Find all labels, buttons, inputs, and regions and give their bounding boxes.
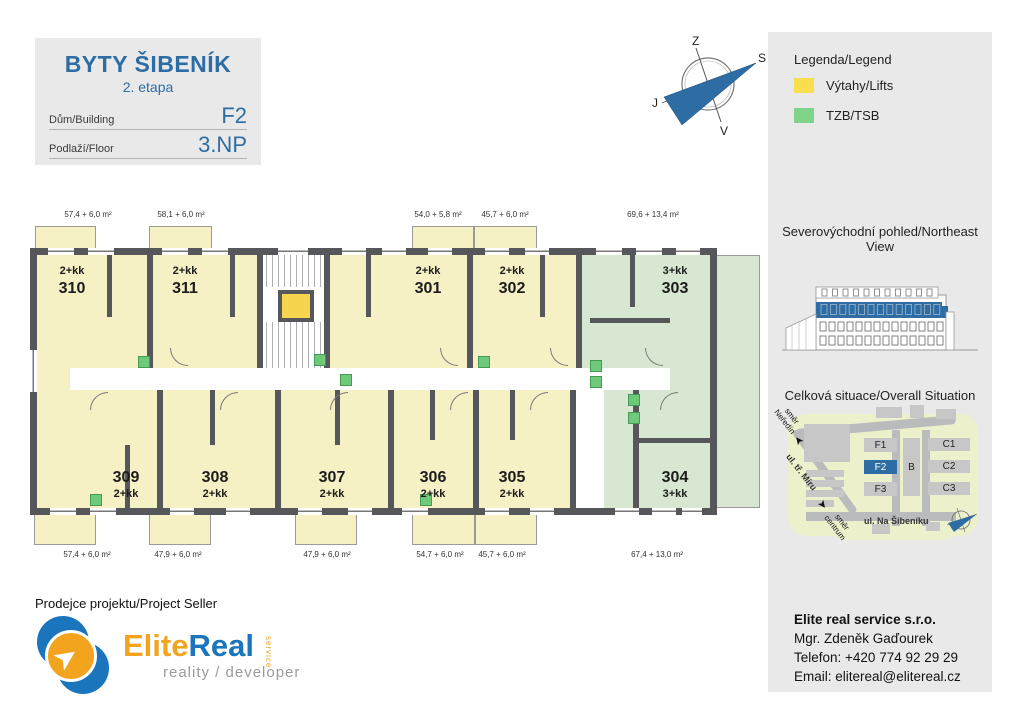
window: [485, 508, 509, 515]
unit-label-302: 2+kk302: [480, 265, 544, 299]
map-building-f3: F3: [864, 482, 897, 496]
compass-west-label: Z: [692, 34, 699, 48]
area-label: 45,7 + 6,0 m²: [457, 550, 547, 559]
window: [348, 508, 372, 515]
title-block: BYTY ŠIBENÍK 2. etapa Dům/Building F2 Po…: [35, 38, 261, 165]
balcony: [35, 226, 96, 249]
corridor-end: [670, 368, 710, 390]
balcony: [474, 226, 537, 249]
unit-label-307: 3072+kk: [300, 468, 364, 502]
legend-title: Legenda/Legend: [794, 52, 892, 67]
tzb-shaft: [628, 394, 640, 406]
floor-value: 3.NP: [198, 132, 247, 158]
area-label: 58,1 + 6,0 m²: [136, 210, 226, 219]
elitereal-logo-text: EliteReal: [123, 628, 254, 664]
window: [342, 248, 366, 255]
legend-lift-label: Výtahy/Lifts: [826, 78, 893, 93]
map-building-c3: C3: [928, 482, 970, 495]
logo-tagline: reality / developer: [163, 664, 300, 681]
balcony: [295, 515, 357, 545]
window: [402, 508, 428, 515]
tzb-room: [604, 390, 633, 508]
window: [525, 248, 549, 255]
contact-person: Mgr. Zdeněk Gaďourek: [794, 629, 961, 648]
contact-email: Email: elitereal@elitereal.cz: [794, 667, 961, 686]
window: [30, 350, 37, 392]
contact-phone: Telefon: +420 774 92 29 29: [794, 648, 961, 667]
unit-label-308: 3082+kk: [183, 468, 247, 502]
window: [636, 248, 662, 255]
window: [382, 248, 406, 255]
window: [530, 508, 554, 515]
seller-heading: Prodejce projektu/Project Seller: [35, 596, 217, 611]
stairs: [266, 322, 321, 368]
area-label: 45,7 + 6,0 m²: [460, 210, 550, 219]
balcony: [149, 226, 212, 249]
unit-label-311: 2+kk311: [153, 265, 217, 299]
balcony: [149, 515, 211, 545]
window: [485, 248, 509, 255]
tzb-shaft: [138, 356, 150, 368]
corridor-end: [37, 368, 70, 390]
unit-label-304: 3043+kk: [643, 468, 707, 502]
map-building-f1: F1: [864, 438, 897, 452]
floor-plan: 57,4 + 6,0 m² 58,1 + 6,0 m² 54,0 + 5,8 m…: [30, 210, 764, 560]
side-panel: Legenda/Legend Výtahy/Lifts TZB/TSB Seve…: [768, 32, 992, 692]
unit-label-310: 2+kk310: [40, 265, 104, 299]
tzb-shaft: [590, 360, 602, 372]
window: [88, 248, 114, 255]
floor-label: Podlaží/Floor: [49, 143, 114, 155]
contact-company: Elite real service s.r.o.: [794, 610, 961, 629]
northeast-elevation: [778, 250, 982, 362]
legend-tzb-swatch: [794, 108, 814, 123]
window: [428, 248, 452, 255]
window: [48, 248, 74, 255]
terrace: [717, 255, 760, 508]
corridor: [70, 368, 670, 390]
window: [50, 508, 76, 515]
tzb-shaft: [590, 376, 602, 388]
floorplan-sheet: BYTY ŠIBENÍK 2. etapa Dům/Building F2 Po…: [0, 0, 1024, 724]
stairs: [266, 255, 321, 287]
tzb-shaft: [314, 354, 326, 366]
street-na-sibeniku: ul. Na Šibeníku: [864, 516, 929, 526]
unit-label-309: 3092+kk: [94, 468, 158, 502]
unit-label-306: 3062+kk: [401, 468, 465, 502]
map-building-c1: C1: [928, 438, 970, 451]
contact-block: Elite real service s.r.o. Mgr. Zdeněk Ga…: [794, 610, 961, 686]
area-label: 69,6 + 13,4 m²: [608, 210, 698, 219]
legend-tzb-label: TZB/TSB: [826, 108, 879, 123]
window: [596, 248, 622, 255]
balcony: [412, 515, 475, 545]
tzb-shaft: [478, 356, 490, 368]
tzb-shaft: [340, 374, 352, 386]
area-label: 67,4 + 13,0 m²: [612, 550, 702, 559]
window: [615, 508, 639, 515]
compass-east-label: V: [720, 124, 728, 138]
compass-rose-icon: Z S J V: [650, 34, 768, 138]
project-title: BYTY ŠIBENÍK: [35, 51, 261, 78]
balcony: [34, 515, 96, 545]
window: [170, 508, 194, 515]
map-building: [804, 424, 850, 462]
area-label: 47,9 + 6,0 m²: [133, 550, 223, 559]
compass-south-label: J: [652, 96, 658, 110]
window: [90, 508, 116, 515]
mini-compass-icon: [944, 504, 980, 536]
map-building-f2-highlighted: F2: [864, 460, 897, 474]
building-label: Dům/Building: [49, 114, 114, 126]
building-value: F2: [221, 103, 247, 129]
unit-label-305: 3052+kk: [480, 468, 544, 502]
window: [226, 508, 250, 515]
area-label: 47,9 + 6,0 m²: [282, 550, 372, 559]
window: [682, 508, 702, 515]
entry-hall: [576, 390, 604, 508]
map-building-c2: C2: [928, 460, 970, 473]
window: [676, 248, 700, 255]
area-label: 57,4 + 6,0 m²: [42, 550, 132, 559]
situation-map: F1 F2 F3 B C1 C2 C3 směr Neředín ➤ ul. t…: [776, 404, 984, 580]
map-building: [876, 407, 902, 418]
balcony: [475, 515, 537, 545]
balcony: [412, 226, 474, 249]
compass-north-label: S: [758, 51, 766, 65]
window: [162, 248, 188, 255]
map-building: [910, 405, 924, 418]
legend-lift-swatch: [794, 78, 814, 93]
project-stage: 2. etapa: [35, 79, 261, 95]
area-label: 57,4 + 6,0 m²: [43, 210, 133, 219]
elitereal-logo-mark-icon: ➤: [35, 616, 111, 694]
map-building-b: B: [903, 438, 920, 496]
window: [652, 508, 676, 515]
window: [202, 248, 228, 255]
map-building: [936, 409, 956, 419]
window: [298, 508, 322, 515]
window: [278, 248, 308, 255]
unit-label-303: 3+kk303: [643, 265, 707, 299]
situation-title: Celková situace/Overall Situation: [768, 388, 992, 403]
unit-label-301: 2+kk301: [396, 265, 460, 299]
tzb-shaft: [628, 412, 640, 424]
lift: [278, 290, 314, 322]
map-parking-row: [806, 470, 844, 477]
elitereal-logo: ➤ EliteReal service reality / developer: [35, 614, 335, 700]
